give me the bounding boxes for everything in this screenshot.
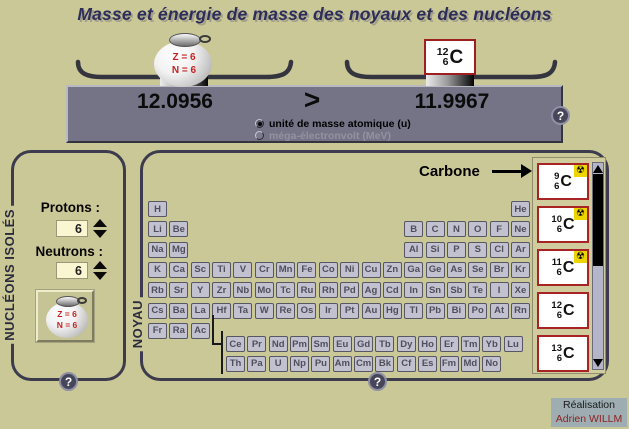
element-cell-Cs[interactable]: Cs xyxy=(148,303,167,319)
isotope-card-12C[interactable]: 126C xyxy=(537,292,589,329)
scroll-up-icon[interactable] xyxy=(593,165,603,173)
element-cell-Ne[interactable]: Ne xyxy=(511,221,530,237)
radio-selected-icon[interactable] xyxy=(255,119,264,128)
scroll-down-icon[interactable] xyxy=(593,359,603,367)
element-cell-Li[interactable]: Li xyxy=(148,221,167,237)
element-cell-Pu[interactable]: Pu xyxy=(311,356,330,372)
element-cell-Ar[interactable]: Ar xyxy=(511,242,530,258)
carbone-arrow-icon xyxy=(492,170,523,173)
credit-line2: Adrien WILLM xyxy=(556,413,623,426)
element-cell-I[interactable]: I xyxy=(490,282,509,298)
help-button-nucleons[interactable]: ? xyxy=(59,372,78,391)
protons-down-arrow[interactable] xyxy=(93,230,107,238)
element-cell-Fe[interactable]: Fe xyxy=(297,262,316,278)
element-cell-Br[interactable]: Br xyxy=(490,262,509,278)
element-cell-W[interactable]: W xyxy=(255,303,274,319)
element-cell-Dy[interactable]: Dy xyxy=(397,336,416,352)
right-mass-value: 11.9967 xyxy=(362,90,542,114)
element-cell-S[interactable]: S xyxy=(468,242,487,258)
element-cell-At[interactable]: At xyxy=(490,303,509,319)
neutrons-up-arrow[interactable] xyxy=(93,261,107,269)
element-cell-U[interactable]: U xyxy=(269,356,288,372)
nuclide-symbol: C xyxy=(449,48,463,67)
element-cell-Ce[interactable]: Ce xyxy=(226,336,245,352)
element-cell-Se[interactable]: Se xyxy=(468,262,487,278)
nucleon-bag: Z = 6 N = 6 xyxy=(153,33,215,87)
lanthanide-bracket xyxy=(213,343,221,345)
element-cell-Gd[interactable]: Gd xyxy=(354,336,373,352)
element-cell-P[interactable]: P xyxy=(447,242,466,258)
element-cell-Cm[interactable]: Cm xyxy=(354,356,373,372)
element-cell-Tm[interactable]: Tm xyxy=(461,336,480,352)
element-cell-Co[interactable]: Co xyxy=(319,262,338,278)
unit-radio-mev[interactable]: méga-électronvolt (MeV) xyxy=(255,130,391,141)
element-cell-Ti[interactable]: Ti xyxy=(212,262,231,278)
element-cell-Md[interactable]: Md xyxy=(461,356,480,372)
element-cell-Na[interactable]: Na xyxy=(148,242,167,258)
element-cell-Ra[interactable]: Ra xyxy=(169,323,188,339)
selected-element-label: Carbone xyxy=(419,163,480,180)
neutrons-input[interactable] xyxy=(56,262,88,279)
element-cell-B[interactable]: B xyxy=(404,221,423,237)
element-cell-Zr[interactable]: Zr xyxy=(212,282,231,298)
nucleon-bag-mini: Z = 6 N = 6 xyxy=(45,296,89,340)
isotope-card-9C[interactable]: 96C☢ xyxy=(537,163,589,200)
radio-unselected-icon[interactable] xyxy=(255,131,264,140)
element-cell-F[interactable]: F xyxy=(490,221,509,237)
element-cell-Cr[interactable]: Cr xyxy=(255,262,274,278)
element-cell-La[interactable]: La xyxy=(191,303,210,319)
protons-up-arrow[interactable] xyxy=(93,219,107,227)
isotope-list-panel: 96C☢106C☢116C☢126C136C xyxy=(532,157,606,374)
protons-stepper[interactable] xyxy=(92,219,108,238)
bag-tie-icon xyxy=(199,35,211,43)
element-cell-Ga[interactable]: Ga xyxy=(404,262,423,278)
element-cell-C[interactable]: C xyxy=(426,221,445,237)
nucleons-panel-title: NUCLÉONS ISOLÉS xyxy=(3,206,16,344)
element-cell-Mo[interactable]: Mo xyxy=(255,282,274,298)
element-cell-Fr[interactable]: Fr xyxy=(148,323,167,339)
bag-collar xyxy=(169,33,201,47)
nuclide-z: 6 xyxy=(443,57,449,68)
element-cell-As[interactable]: As xyxy=(447,262,466,278)
help-button-balance[interactable]: ? xyxy=(551,106,570,125)
protons-label: Protons : xyxy=(24,200,100,215)
scroll-thumb[interactable] xyxy=(593,174,603,266)
element-cell-In[interactable]: In xyxy=(404,282,423,298)
radioactive-icon: ☢ xyxy=(574,208,587,220)
element-cell-Mg[interactable]: Mg xyxy=(169,242,188,258)
element-cell-Nb[interactable]: Nb xyxy=(233,282,252,298)
element-cell-Sb[interactable]: Sb xyxy=(447,282,466,298)
credit-box: Réalisation Adrien WILLM xyxy=(551,398,627,427)
element-cell-Te[interactable]: Te xyxy=(468,282,487,298)
element-cell-Hf[interactable]: Hf xyxy=(212,303,231,319)
element-cell-Pt[interactable]: Pt xyxy=(340,303,359,319)
element-cell-Ir[interactable]: Ir xyxy=(319,303,338,319)
element-cell-Tb[interactable]: Tb xyxy=(375,336,394,352)
element-cell-Zn[interactable]: Zn xyxy=(383,262,402,278)
isotope-card-11C[interactable]: 116C☢ xyxy=(537,249,589,286)
balance-pans-icon xyxy=(60,30,570,85)
applet-stage: Masse et énergie de masse des noyaux et … xyxy=(0,0,629,429)
element-cell-Re[interactable]: Re xyxy=(276,303,295,319)
element-cell-Os[interactable]: Os xyxy=(297,303,316,319)
element-cell-Be[interactable]: Be xyxy=(169,221,188,237)
element-cell-Am[interactable]: Am xyxy=(333,356,352,372)
element-cell-Pd[interactable]: Pd xyxy=(340,282,359,298)
bag-tie-icon xyxy=(77,297,87,304)
element-cell-V[interactable]: V xyxy=(233,262,252,278)
isotope-card-13C[interactable]: 136C xyxy=(537,335,589,372)
element-cell-Ni[interactable]: Ni xyxy=(340,262,359,278)
element-cell-Cu[interactable]: Cu xyxy=(362,262,381,278)
lanthanide-bracket xyxy=(212,315,214,345)
element-cell-Si[interactable]: Si xyxy=(426,242,445,258)
element-cell-Ca[interactable]: Ca xyxy=(169,262,188,278)
noyau-panel-title: NOYAU xyxy=(131,297,144,351)
element-cell-Yb[interactable]: Yb xyxy=(482,336,501,352)
element-cell-Al[interactable]: Al xyxy=(404,242,423,258)
element-cell-Pr[interactable]: Pr xyxy=(247,336,266,352)
element-cell-Ho[interactable]: Ho xyxy=(418,336,437,352)
element-cell-Th[interactable]: Th xyxy=(226,356,245,372)
element-cell-Tl[interactable]: Tl xyxy=(404,303,423,319)
element-cell-Cl[interactable]: Cl xyxy=(490,242,509,258)
element-cell-Bk[interactable]: Bk xyxy=(375,356,394,372)
neutrons-stepper[interactable] xyxy=(92,261,108,280)
element-cell-Sm[interactable]: Sm xyxy=(311,336,330,352)
element-cell-Ac[interactable]: Ac xyxy=(191,323,210,339)
lanthanide-bracket xyxy=(221,331,223,374)
element-cell-Rh[interactable]: Rh xyxy=(319,282,338,298)
element-cell-Rb[interactable]: Rb xyxy=(148,282,167,298)
credit-line1: Réalisation xyxy=(563,399,615,412)
nuclide-card: 12 6 C xyxy=(424,39,476,75)
element-cell-Ta[interactable]: Ta xyxy=(233,303,252,319)
neutrons-down-arrow[interactable] xyxy=(93,272,107,280)
bag-label: Z = 6 N = 6 xyxy=(45,309,89,330)
element-cell-K[interactable]: K xyxy=(148,262,167,278)
element-cell-Sn[interactable]: Sn xyxy=(426,282,445,298)
carbone-arrowhead-icon xyxy=(521,164,532,178)
left-mass-value: 12.0956 xyxy=(85,90,265,114)
element-cell-He[interactable]: He xyxy=(511,201,530,217)
element-cell-Bi[interactable]: Bi xyxy=(447,303,466,319)
element-cell-Er[interactable]: Er xyxy=(440,336,459,352)
isotope-scrollbar[interactable] xyxy=(592,162,604,370)
element-cell-H[interactable]: H xyxy=(148,201,167,217)
element-cell-Po[interactable]: Po xyxy=(468,303,487,319)
right-pedestal xyxy=(426,75,474,86)
element-cell-Mn[interactable]: Mn xyxy=(276,262,295,278)
radioactive-icon: ☢ xyxy=(574,251,587,263)
element-cell-Au[interactable]: Au xyxy=(362,303,381,319)
element-cell-No[interactable]: No xyxy=(482,356,501,372)
help-button-noyau[interactable]: ? xyxy=(368,372,387,391)
element-cell-Nd[interactable]: Nd xyxy=(269,336,288,352)
element-cell-Xe[interactable]: Xe xyxy=(511,282,530,298)
element-cell-Eu[interactable]: Eu xyxy=(333,336,352,352)
element-cell-Ag[interactable]: Ag xyxy=(362,282,381,298)
element-cell-Hg[interactable]: Hg xyxy=(383,303,402,319)
comparison-sign: > xyxy=(288,84,336,116)
element-cell-N[interactable]: N xyxy=(447,221,466,237)
element-cell-Pa[interactable]: Pa xyxy=(247,356,266,372)
element-cell-Y[interactable]: Y xyxy=(191,282,210,298)
element-cell-Sc[interactable]: Sc xyxy=(191,262,210,278)
unit-radio-u[interactable]: unité de masse atomique (u) xyxy=(255,118,411,129)
element-cell-Cd[interactable]: Cd xyxy=(383,282,402,298)
element-cell-Pm[interactable]: Pm xyxy=(290,336,309,352)
radioactive-icon: ☢ xyxy=(574,165,587,177)
element-cell-Lu[interactable]: Lu xyxy=(504,336,523,352)
element-cell-Sr[interactable]: Sr xyxy=(169,282,188,298)
element-cell-Fm[interactable]: Fm xyxy=(440,356,459,372)
element-cell-Rn[interactable]: Rn xyxy=(511,303,530,319)
bag-label: Z = 6 N = 6 xyxy=(153,52,215,77)
protons-input[interactable] xyxy=(56,220,88,237)
element-cell-Kr[interactable]: Kr xyxy=(511,262,530,278)
element-cell-Ru[interactable]: Ru xyxy=(297,282,316,298)
element-cell-O[interactable]: O xyxy=(468,221,487,237)
element-cell-Es[interactable]: Es xyxy=(418,356,437,372)
bag-preview-frame: Z = 6 N = 6 xyxy=(36,290,94,342)
page-title: Masse et énergie de masse des noyaux et … xyxy=(0,4,629,25)
element-cell-Pb[interactable]: Pb xyxy=(426,303,445,319)
element-cell-Tc[interactable]: Tc xyxy=(276,282,295,298)
neutrons-label: Neutrons : xyxy=(24,244,103,259)
element-cell-Cf[interactable]: Cf xyxy=(397,356,416,372)
element-cell-Ba[interactable]: Ba xyxy=(169,303,188,319)
isotope-card-10C[interactable]: 106C☢ xyxy=(537,206,589,243)
element-cell-Np[interactable]: Np xyxy=(290,356,309,372)
element-cell-Ge[interactable]: Ge xyxy=(426,262,445,278)
